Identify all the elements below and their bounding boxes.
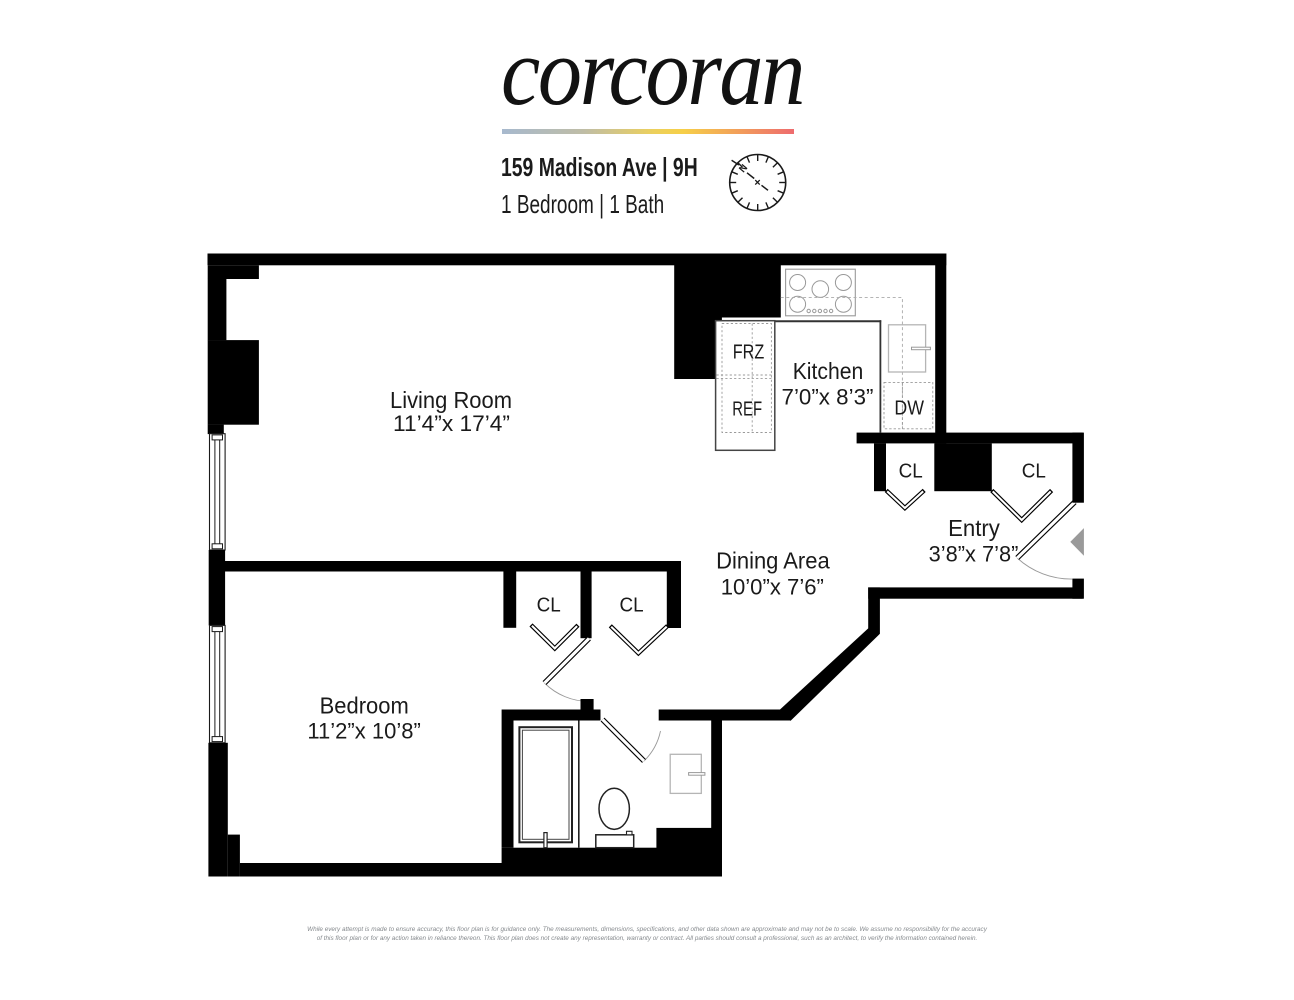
svg-text:Living Room: Living Room xyxy=(390,387,512,413)
svg-text:DW: DW xyxy=(894,398,924,420)
svg-text:Kitchen: Kitchen xyxy=(793,358,864,384)
svg-text:FRZ: FRZ xyxy=(733,341,765,363)
svg-text:CL: CL xyxy=(620,595,644,617)
svg-text:11’2”x 10’8”: 11’2”x 10’8” xyxy=(307,719,420,744)
svg-text:10’0”x 7’6”: 10’0”x 7’6” xyxy=(721,575,824,600)
svg-text:CL: CL xyxy=(1022,461,1046,483)
svg-text:11’4”x 17’4”: 11’4”x 17’4” xyxy=(393,411,510,436)
svg-text:CL: CL xyxy=(899,461,923,483)
svg-text:Bedroom: Bedroom xyxy=(320,693,409,719)
svg-text:7’0”x 8’3”: 7’0”x 8’3” xyxy=(782,385,874,410)
svg-text:Dining Area: Dining Area xyxy=(716,548,830,574)
svg-text:Entry: Entry xyxy=(948,515,1000,541)
svg-text:REF: REF xyxy=(732,399,762,421)
svg-text:3’8”x 7’8”: 3’8”x 7’8” xyxy=(929,542,1019,567)
svg-text:CL: CL xyxy=(537,595,561,617)
